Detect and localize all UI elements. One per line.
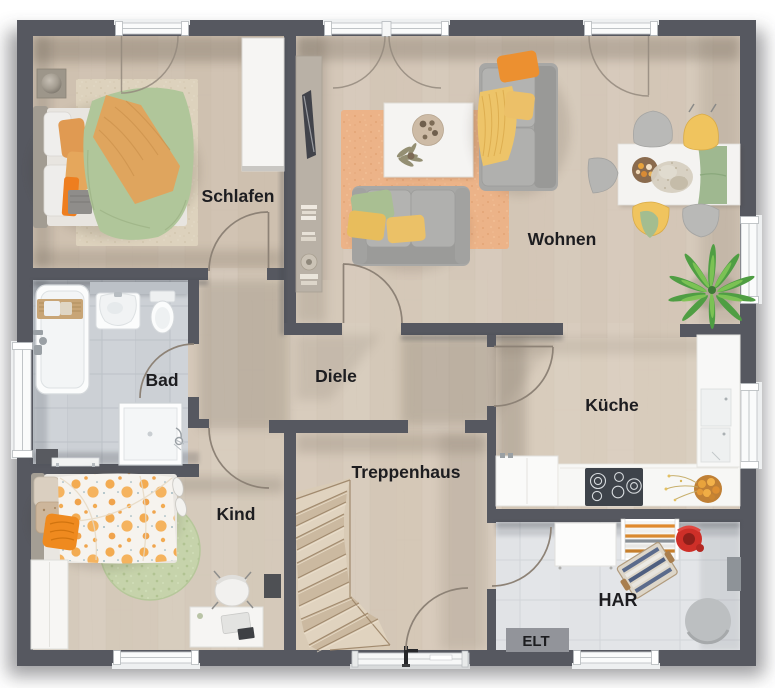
svg-text:ELT: ELT — [522, 633, 549, 650]
svg-text:Treppenhaus: Treppenhaus — [352, 462, 461, 482]
svg-text:Bad: Bad — [145, 370, 178, 390]
svg-text:Kind: Kind — [217, 504, 256, 524]
svg-text:HAR: HAR — [599, 590, 638, 610]
svg-text:Schlafen: Schlafen — [202, 186, 275, 206]
svg-text:Diele: Diele — [315, 366, 357, 386]
svg-text:Wohnen: Wohnen — [528, 229, 597, 249]
svg-text:Küche: Küche — [585, 395, 639, 415]
